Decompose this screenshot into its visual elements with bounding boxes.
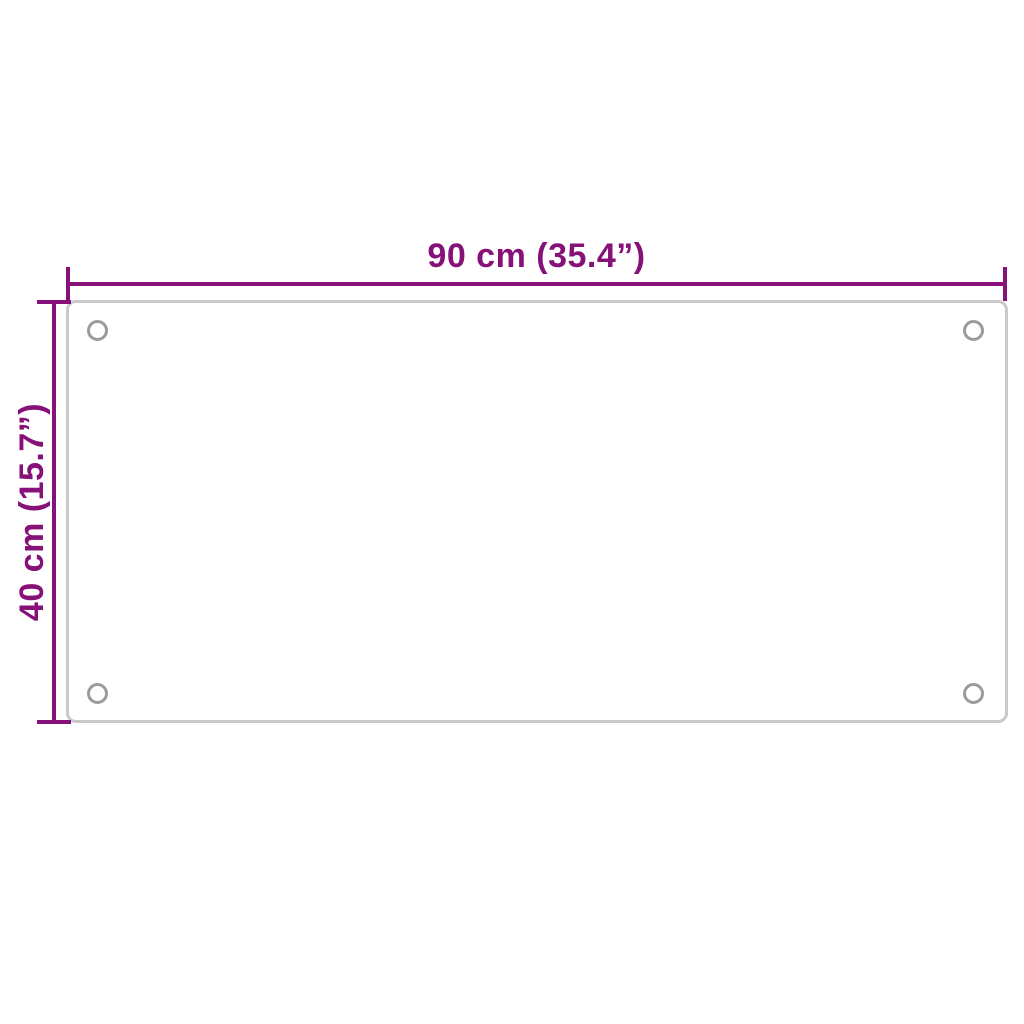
height-dimension-tick-bottom xyxy=(37,720,71,724)
mounting-hole-top-left-icon xyxy=(87,320,108,341)
width-dimension-label: 90 cm (35.4”) xyxy=(68,236,1005,276)
width-dimension-line xyxy=(68,282,1005,286)
height-dimension-line xyxy=(52,302,56,722)
height-dimension-label: 40 cm (15.7”) xyxy=(12,362,52,662)
height-dimension-tick-top xyxy=(37,300,71,304)
mounting-hole-bottom-left-icon xyxy=(87,683,108,704)
mounting-hole-bottom-right-icon xyxy=(963,683,984,704)
glass-panel-outline xyxy=(66,300,1008,723)
mounting-hole-top-right-icon xyxy=(963,320,984,341)
dimension-diagram: 90 cm (35.4”) 40 cm (15.7”) xyxy=(0,0,1024,1024)
